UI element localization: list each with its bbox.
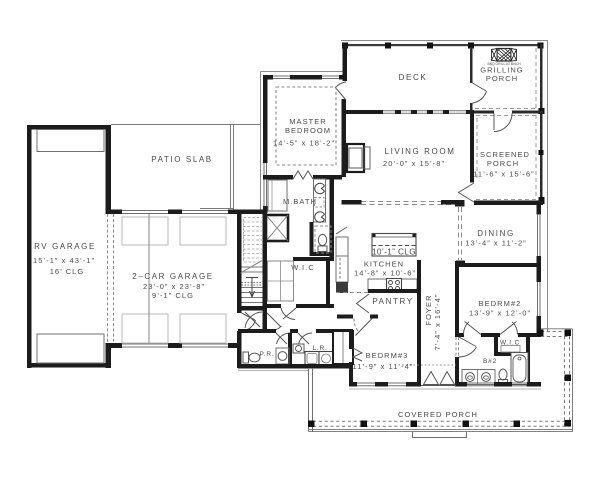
svg-text:RV GARAGE: RV GARAGE: [34, 242, 96, 251]
svg-text:DINING: DINING: [477, 229, 515, 238]
svg-text:W.I.C: W.I.C: [291, 263, 315, 272]
svg-text:KITCHEN: KITCHEN: [364, 260, 404, 269]
svg-text:SCREENED: SCREENED: [480, 150, 530, 159]
svg-text:10’-1” CLG: 10’-1” CLG: [372, 248, 416, 257]
svg-text:7’-4” x 16’-4”: 7’-4” x 16’-4”: [433, 294, 442, 351]
svg-text:BEDRM#2: BEDRM#2: [479, 299, 522, 308]
svg-text:11’-6” x 15’-6”: 11’-6” x 15’-6”: [473, 170, 534, 179]
svg-text:LIVING ROOM: LIVING ROOM: [385, 147, 456, 156]
svg-text:DECK: DECK: [399, 73, 428, 82]
svg-text:BEDROOM: BEDROOM: [285, 126, 331, 135]
svg-text:16’ CLG: 16’ CLG: [50, 267, 85, 276]
svg-text:14’-8” x 10’-6”: 14’-8” x 10’-6”: [354, 269, 416, 278]
svg-text:PATIO SLAB: PATIO SLAB: [151, 155, 213, 164]
svg-text:15’-1” x 43’-1”: 15’-1” x 43’-1”: [33, 256, 95, 265]
svg-text:20’-0” x 15’-8”: 20’-0” x 15’-8”: [383, 159, 445, 168]
svg-text:BEDRM#3: BEDRM#3: [366, 351, 409, 360]
svg-text:P.R.: P.R.: [259, 351, 274, 358]
svg-text:23’-0” x 23’-8”: 23’-0” x 23’-8”: [143, 282, 205, 291]
svg-text:13’-4” x 11’-2”: 13’-4” x 11’-2”: [465, 239, 526, 248]
svg-text:M.BATH: M.BATH: [283, 197, 317, 206]
svg-text:14’-5” x 18’-2”: 14’-5” x 18’-2”: [273, 139, 335, 148]
svg-text:PANTRY: PANTRY: [372, 297, 413, 306]
svg-text:PORCH: PORCH: [486, 74, 518, 83]
svg-text:COVERED PORCH: COVERED PORCH: [398, 410, 478, 419]
svg-text:B#2: B#2: [483, 358, 497, 365]
svg-text:MASTER: MASTER: [289, 117, 327, 126]
svg-text:11’-9” x 11’-4”: 11’-9” x 11’-4”: [353, 362, 414, 371]
svg-text:9’-1” CLG: 9’-1” CLG: [152, 291, 194, 300]
svg-text:2–CAR GARAGE: 2–CAR GARAGE: [132, 272, 213, 281]
svg-text:FOYER: FOYER: [424, 294, 433, 325]
svg-text:13’-9” x 12’-0”: 13’-9” x 12’-0”: [469, 309, 531, 318]
svg-text:PORCH: PORCH: [487, 159, 519, 168]
